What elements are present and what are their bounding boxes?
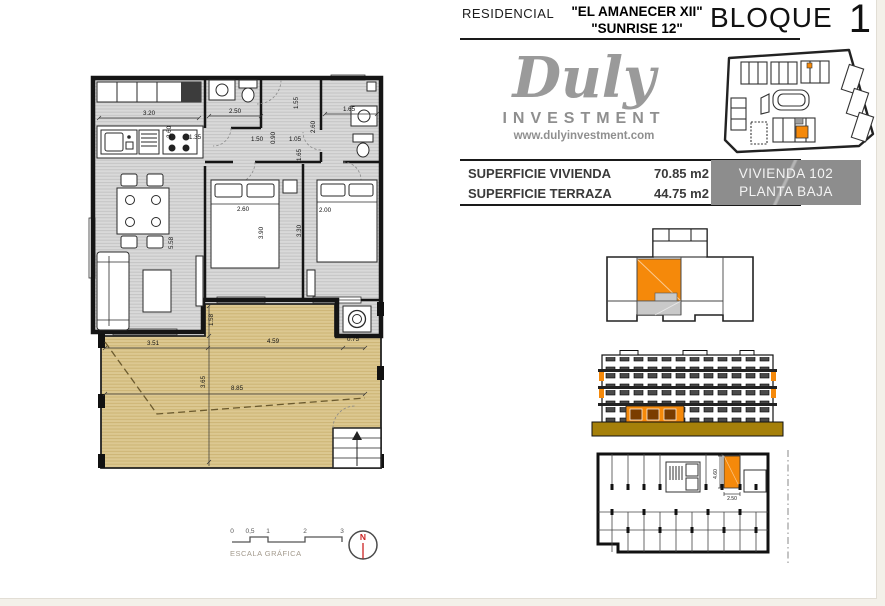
bloque-label: BLOQUE: [710, 0, 833, 36]
north-letter: N: [360, 532, 366, 542]
unit-number: VIVIENDA 102: [739, 165, 834, 183]
dimension-label: 1.55: [293, 96, 300, 109]
scale-bar-label: ESCALA GRÁFICA: [230, 549, 302, 558]
dimension-label: 1.58: [208, 313, 215, 326]
areas-table: SUPERFICIE VIVIENDA 70.85 m2 SUPERFICIE …: [468, 163, 714, 203]
dimension-label: 3.51: [147, 340, 160, 347]
site-gray-core: [795, 118, 803, 124]
project-name-line1: "EL AMANECER XII": [548, 3, 726, 20]
dimension-label: 2.60: [310, 120, 317, 133]
company-logo: Duly INVESTMENT www.dulyinvestment.com: [468, 46, 700, 142]
key-plan: [597, 221, 763, 334]
dimension-label: 5.58: [168, 236, 175, 249]
kitchen-oven-icon: [139, 130, 159, 154]
garage-height-dim: 4.60: [713, 469, 719, 479]
bloque-number: 1: [849, 0, 871, 38]
scale-tick: 0: [230, 528, 234, 535]
coffee-table: [143, 270, 171, 312]
unit-floor: PLANTA BAJA: [739, 183, 833, 201]
area-value: 44.75 m2: [654, 186, 709, 201]
area-row-terraza: SUPERFICIE TERRAZA 44.75 m2: [468, 183, 714, 203]
area-label: SUPERFICIE TERRAZA: [468, 186, 654, 201]
site-plan-minimap: [703, 42, 881, 160]
elevation-base: [592, 422, 783, 436]
dimension-label: 1.05: [289, 136, 302, 143]
dimension-label: 0.75: [347, 336, 360, 343]
dimension-label: 3.20: [143, 110, 156, 117]
keyplan-step: [655, 293, 677, 301]
project-name-line2: "SUNRISE 12": [548, 20, 726, 37]
washing-machine-icon: [343, 306, 371, 332]
scale-tick: 1: [266, 528, 270, 535]
logo-brand: Duly: [468, 46, 700, 110]
area-label: SUPERFICIE VIVIENDA: [468, 166, 654, 181]
kitchen-sink-icon: [101, 130, 137, 154]
dimension-label: 2.60: [166, 125, 173, 138]
garage-stair-core: [666, 462, 700, 492]
keyplan-core: [653, 229, 707, 257]
dimension-label: 8.85: [231, 385, 244, 392]
dimension-label: 4.59: [267, 338, 280, 345]
dimension-label: 1.50: [251, 136, 264, 143]
dimension-label: 2.50: [229, 108, 242, 115]
elevation-drawing: [590, 347, 788, 442]
tv-unit: [196, 256, 203, 306]
unit-identifier-box: VIVIENDA 102 PLANTA BAJA: [711, 160, 861, 205]
area-value: 70.85 m2: [654, 166, 709, 181]
drawing-sheet: RESIDENCIAL "EL AMANECER XII" "SUNRISE 1…: [0, 0, 877, 599]
garage-width-dim: 2.50: [727, 496, 737, 502]
logo-subtitle: INVESTMENT: [468, 110, 700, 128]
bathroom-1: [209, 80, 257, 102]
logo-website: www.dulyinvestment.com: [468, 130, 700, 142]
residencial-label: RESIDENCIAL: [462, 6, 554, 21]
dimension-label: 0.90: [270, 131, 277, 144]
dimension-label: 2.60: [237, 206, 250, 213]
floor-plan-svg: 3.202.601.352.501.551.652.601.501.050.90…: [85, 70, 387, 482]
site-highlight-unit: [796, 126, 808, 138]
dimension-label: 3.90: [258, 226, 265, 239]
dimension-label: 3.30: [296, 224, 303, 237]
scale-tick: 2: [303, 528, 307, 535]
site-highlight-small: [807, 63, 812, 68]
elevation-roof: [620, 351, 754, 356]
header-rule: [460, 38, 800, 40]
north-arrow: N: [344, 524, 382, 564]
dimension-label: 1.65: [296, 148, 303, 161]
project-name: "EL AMANECER XII" "SUNRISE 12": [548, 3, 726, 37]
dimension-label: 3.65: [200, 375, 207, 388]
area-row-vivienda: SUPERFICIE VIVIENDA 70.85 m2: [468, 163, 714, 183]
bloque-title: BLOQUE 1: [710, 0, 876, 38]
dimension-label: 2.00: [319, 207, 332, 214]
scale-bar-profile: [232, 537, 342, 542]
garage-plan: 4.60 2.50: [588, 448, 800, 566]
dimension-label: 1.35: [189, 134, 202, 141]
elevation-highlight-windows: [630, 409, 676, 420]
dimension-label: 1.65: [343, 106, 356, 113]
scale-tick: 0,5: [245, 528, 254, 535]
scale-bar: 0 0,5 1 2 3 ESCALA GRÁFICA: [228, 524, 352, 564]
